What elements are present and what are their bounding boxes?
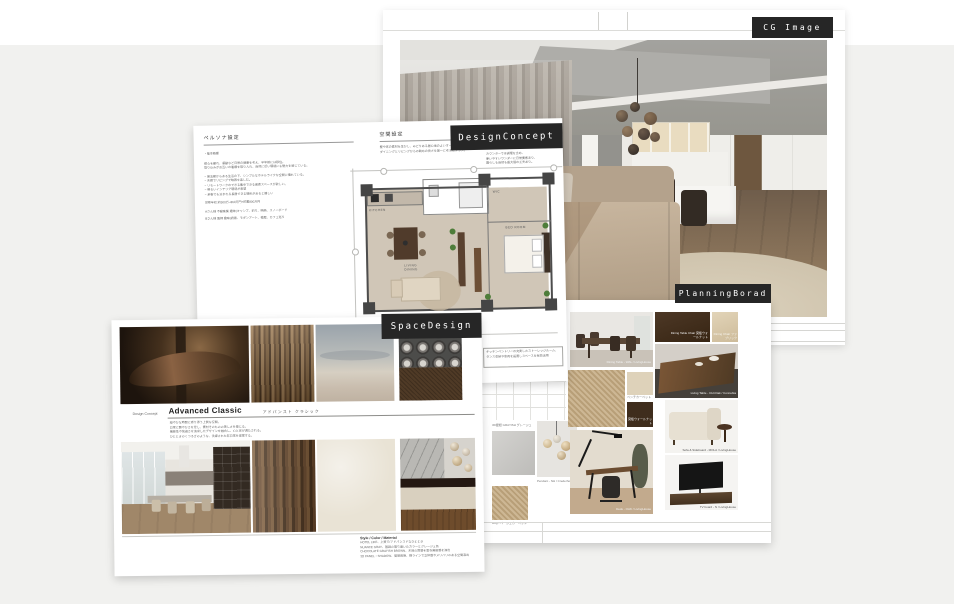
- plan-column: [363, 302, 375, 314]
- photo-sofa-leg: [711, 440, 713, 445]
- photo-side-table-stem: [724, 430, 726, 442]
- gray-swatch-caption: 3D壁紙 GRAYISH グレージュ: [492, 424, 538, 428]
- plan-chair: [387, 232, 394, 239]
- glass-bubble: [450, 442, 459, 451]
- photo-dish: [695, 362, 703, 366]
- sheet-frame-line: [480, 531, 771, 532]
- plaster-texture: [317, 439, 396, 532]
- pendant-light: [616, 102, 664, 162]
- living-table-photo: Living Table - CH×Oak / Connubia: [655, 344, 738, 398]
- plan-label-bedroom: BED ROOM: [505, 225, 525, 229]
- wood-band: [401, 509, 476, 531]
- photo-tv: [679, 461, 723, 490]
- dimension-marker: [550, 164, 557, 171]
- photo-shelving: [213, 447, 251, 509]
- interior-photo: [121, 441, 251, 535]
- plan-plant: [485, 294, 491, 300]
- tv-board-caption: TV board - N / LivingHouse: [700, 505, 736, 510]
- annotation-line: タンス収納や家具を設置しスペースを有効活用: [486, 353, 560, 359]
- pendant-bulb: [650, 132, 660, 142]
- tv-board-photo: TV board - N / LivingHouse: [665, 455, 738, 510]
- photo-kitchen-counter: [165, 471, 213, 486]
- photo-chair: [626, 336, 636, 351]
- desk-caption: Desk - OAK / LivingHouse: [616, 508, 651, 512]
- pendant-bulb: [638, 128, 650, 140]
- dimension-marker: [380, 168, 387, 175]
- carpet-small-swatch: [627, 372, 653, 395]
- carpet-texture: [568, 370, 625, 427]
- walnut-swatch-caption: 突板ウォールナット: [628, 418, 652, 426]
- plan-tv-board: [458, 232, 466, 286]
- text-line: Aさん様 不動産業 趣味(キャンプ、釣り、映画、スノーボード: [205, 206, 355, 214]
- plan-chair: [419, 249, 426, 256]
- planning-board-tag-label: PlanningBorad: [679, 289, 768, 298]
- glass-bubble: [462, 448, 470, 456]
- plan-body: KITCHEN LIVING DINING BED ROOM WIC: [364, 176, 553, 320]
- space-header: 空間設定: [379, 130, 403, 138]
- photo-lamp-arm: [578, 439, 592, 467]
- plan-label-wic: WIC: [493, 189, 500, 193]
- space-design-sheet: SpaceDesign Design Concept Advanced Clas…: [111, 316, 484, 577]
- plan-column: [361, 184, 373, 196]
- text-line: 世帯年収:約500万−860万円+貯蓄800万円: [205, 198, 355, 206]
- plan-centerpiece: [403, 240, 408, 245]
- plan-plant: [450, 244, 456, 250]
- plan-plant: [544, 290, 550, 296]
- photo-chair: [152, 500, 161, 512]
- dining-chair-caption: Dining Table Chair 突板ウォールナット: [668, 332, 708, 340]
- slat-shade: [252, 440, 316, 533]
- plan-plant: [542, 222, 548, 228]
- rug-swatch: [492, 486, 528, 520]
- frame-tick: [627, 12, 628, 30]
- desk-photo: Desk - OAK / LivingHouse: [570, 430, 653, 514]
- photo-chair: [168, 501, 177, 513]
- plan-pillow: [532, 255, 542, 268]
- photo-chair: [186, 501, 195, 513]
- cloud-band: [320, 350, 390, 361]
- mood-photo-chair-detail: [120, 326, 250, 405]
- pendant-bulb: [644, 112, 657, 125]
- persona-text-block: ・基本概要 都心を離れ、運動など日常の健康を考え、半年前には移住。 取り込みがお…: [204, 149, 355, 222]
- text-line: 3D PANEL・SHADOW、間接照明、横ラインで立体感やメリハリのある空間演…: [360, 552, 478, 558]
- stone-band: [401, 487, 476, 510]
- mood-photo-bark: [251, 325, 315, 403]
- sofa-photo: Sofa & Sideboard - MOLA / LivingHouse: [665, 400, 738, 453]
- sheet-frame-line: [480, 522, 771, 523]
- planning-board-tag: PlanningBorad: [675, 284, 771, 303]
- dining-chair-swatch: Dining Table Chair 突板ウォールナット: [655, 312, 710, 342]
- pendant-bulb: [630, 102, 640, 112]
- side-chair: [681, 190, 707, 226]
- theme-title: Advanced Classic: [169, 406, 242, 416]
- photo-chair: [610, 336, 620, 351]
- dining-fabric-swatch: Dining Chair ファブリック: [712, 312, 738, 342]
- theme-title-kana: アドバンスト クラシック: [263, 409, 320, 416]
- plan-label-kitchen: KITCHEN: [369, 208, 386, 212]
- plan-tv-board: [474, 248, 482, 292]
- plan-wall: [486, 176, 550, 179]
- photo-hood: [179, 445, 189, 467]
- pendant-bulb: [628, 144, 639, 155]
- photo-tabletop: [658, 352, 735, 393]
- walnut-swatch: 突板ウォールナット: [627, 402, 653, 427]
- carpet-small-caption: ベンチカーペット: [627, 396, 657, 400]
- pendant-bulb: [622, 126, 633, 137]
- photo-soil: [399, 367, 462, 401]
- photo-chair: [202, 499, 211, 511]
- plan-label-living: LIVING DINING: [404, 263, 430, 272]
- bark-shade: [251, 325, 315, 403]
- photo-window: [634, 316, 650, 350]
- dining-fabric-caption: Dining Chair ファブリック: [713, 333, 737, 341]
- text-line: ・基本概要: [204, 149, 354, 157]
- dining-table-caption: Dining Table - WAL / LivingHouse: [607, 361, 651, 365]
- photo-lamp-head: [614, 434, 622, 438]
- dimension-marker: [352, 248, 359, 255]
- frame-tick: [598, 12, 599, 30]
- gray-wallpaper-swatch: [492, 431, 535, 475]
- design-concept-tag: DesignConcept: [450, 123, 562, 150]
- glass-bulb: [557, 451, 566, 460]
- marble-swatch: [400, 438, 444, 479]
- concept-label: Design Concept: [133, 412, 158, 416]
- annotation-box: キッチンペントリーの充実したストーレッジルーム、 タンス収納や家具を設置しスペー…: [483, 346, 563, 368]
- dimension-marker: [470, 166, 477, 173]
- space-design-tag: SpaceDesign: [381, 313, 481, 339]
- style-block: Style / Color / Material HOTEL LIKE、上質で/…: [360, 535, 478, 558]
- floor-plan: KITCHEN LIVING DINING BED ROOM WIC: [350, 164, 565, 328]
- sofa-caption: Sofa & Sideboard - MOLA / LivingHouse: [682, 448, 736, 453]
- frame-tick: [542, 522, 543, 543]
- glass-bubble: [452, 456, 462, 466]
- glass-bulb: [543, 439, 552, 448]
- pendant-bulb: [616, 110, 628, 122]
- plan-column: [545, 298, 557, 310]
- glass-bulb: [553, 435, 561, 443]
- plan-column: [478, 174, 490, 186]
- photo-table-leg: [588, 344, 590, 358]
- plan-column: [542, 172, 554, 184]
- photo-chair-base: [600, 500, 622, 502]
- text-line: Bさん様 医師 趣味(読書、モダンアート、植栽、カフェ巡り: [205, 214, 355, 222]
- cg-image-tag-label: CG Image: [763, 23, 822, 32]
- side-note-block: カウンターでは調理を含め、 使いやすいワンダーに日常要素あり、 暮らしも自然も最…: [486, 150, 560, 165]
- plan-armchair: [391, 280, 403, 298]
- glass-bulb: [547, 449, 556, 458]
- plan-pillow: [532, 239, 542, 252]
- living-table-caption: Living Table - CH×Oak / Connubia: [691, 392, 736, 396]
- persona-header: ペルソナ設定: [203, 134, 239, 142]
- theme-description: 穏やかな時間に寄り添う上質な空間。 日常に艶やかさを足し、素材そのものの美しさを…: [170, 419, 330, 439]
- material-composite: [400, 438, 476, 531]
- photo-sofa-leg: [673, 440, 675, 445]
- photo-tv-lowboard: [670, 492, 732, 505]
- photo-chair: [602, 476, 620, 498]
- wood-slat-texture: [252, 440, 316, 533]
- space-design-tag-label: SpaceDesign: [391, 320, 473, 331]
- design-concept-tag-label: DesignConcept: [458, 131, 555, 143]
- header-underline: [204, 142, 354, 146]
- cg-image-tag: CG Image: [752, 17, 833, 38]
- plan-sofa: [401, 277, 441, 302]
- plan-plant: [449, 228, 455, 234]
- dining-photo: Dining Table - WAL / LivingHouse: [570, 312, 653, 367]
- plan-chair: [387, 250, 394, 257]
- plan-stove: [385, 194, 393, 202]
- glass-bubble: [464, 464, 472, 472]
- photo-dish: [709, 356, 719, 361]
- plan-column: [481, 300, 493, 312]
